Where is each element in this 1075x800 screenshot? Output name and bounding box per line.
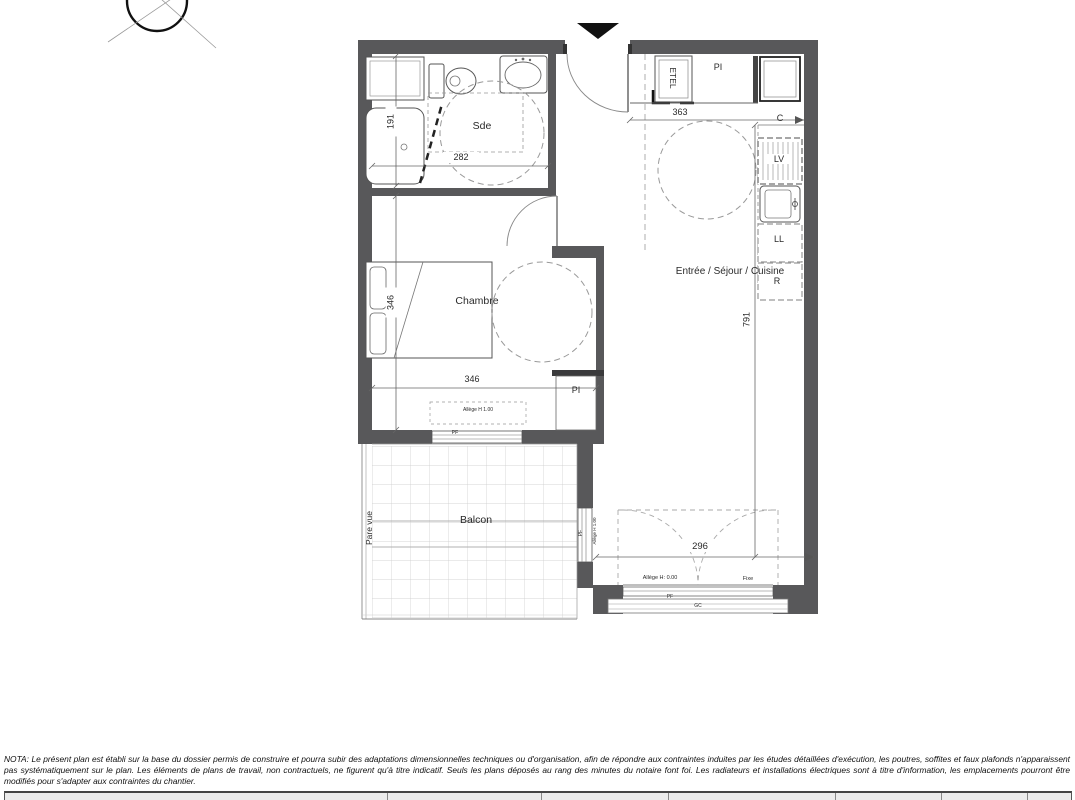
pf-bay-label: PF — [660, 594, 680, 600]
pare-vue-label: Pare vue — [364, 498, 376, 558]
title-block-cell — [836, 793, 942, 800]
floor-plan-drawing — [0, 0, 1075, 800]
room-label-chambre: Chambre — [432, 295, 522, 307]
north-arrow-icon — [577, 23, 619, 39]
dishwasher-label: LV — [766, 154, 792, 164]
title-block-cell — [942, 793, 1028, 800]
title-block-cell — [388, 793, 542, 800]
title-block-cell — [542, 793, 669, 800]
floor-plan-page: Sde Chambre Entrée / Séjour / Cuisine Ba… — [0, 0, 1075, 800]
dim-chambre-width: 346 — [454, 374, 490, 385]
fixe-label: Fixe — [736, 576, 760, 582]
pf-chambre-label: PF — [445, 430, 465, 436]
fridge-label: R — [764, 276, 790, 286]
corner-closet — [760, 57, 800, 101]
dim-sde-depth: 191 — [386, 107, 397, 137]
pi-entry-label: PI — [703, 62, 733, 72]
dim-chambre-depth: 346 — [386, 288, 397, 318]
chambre-door-arc — [507, 196, 557, 246]
allege-balcony-label: Allège H 1.00 — [592, 506, 602, 556]
cooker-label: C — [770, 113, 790, 123]
balcony-tiles — [362, 444, 577, 619]
dim-bay-width: 296 — [682, 541, 718, 552]
washer-space-icon — [366, 57, 424, 100]
dim-entry-width: 363 — [662, 107, 698, 118]
title-block — [4, 791, 1072, 800]
dim-sejour-depth: 791 — [742, 305, 753, 335]
title-block-cell — [1028, 793, 1071, 800]
washer-label: LL — [766, 234, 792, 244]
etel-label: ETEL — [666, 58, 678, 98]
gc-bay-label: GC — [688, 603, 708, 609]
entry-door-arc — [567, 54, 628, 112]
bathroom-sink-icon — [500, 56, 547, 93]
compass-icon — [108, 0, 216, 48]
kitchen-sink-icon — [760, 186, 800, 222]
dim-sde-width: 282 — [443, 152, 479, 163]
room-label-balcon: Balcon — [436, 514, 516, 526]
pi-chambre-label: PI — [562, 385, 590, 395]
nota-text: NOTA: Le présent plan est établi sur la … — [4, 754, 1070, 788]
title-block-cell — [5, 793, 388, 800]
title-block-cell — [669, 793, 836, 800]
room-label-sde: Sde — [462, 120, 502, 132]
pf-balcony-label: PF — [578, 523, 588, 543]
allege-bay-label: Allège H: 0.00 — [630, 575, 690, 581]
allege-chambre-label: Allège H 1.00 — [436, 407, 520, 413]
